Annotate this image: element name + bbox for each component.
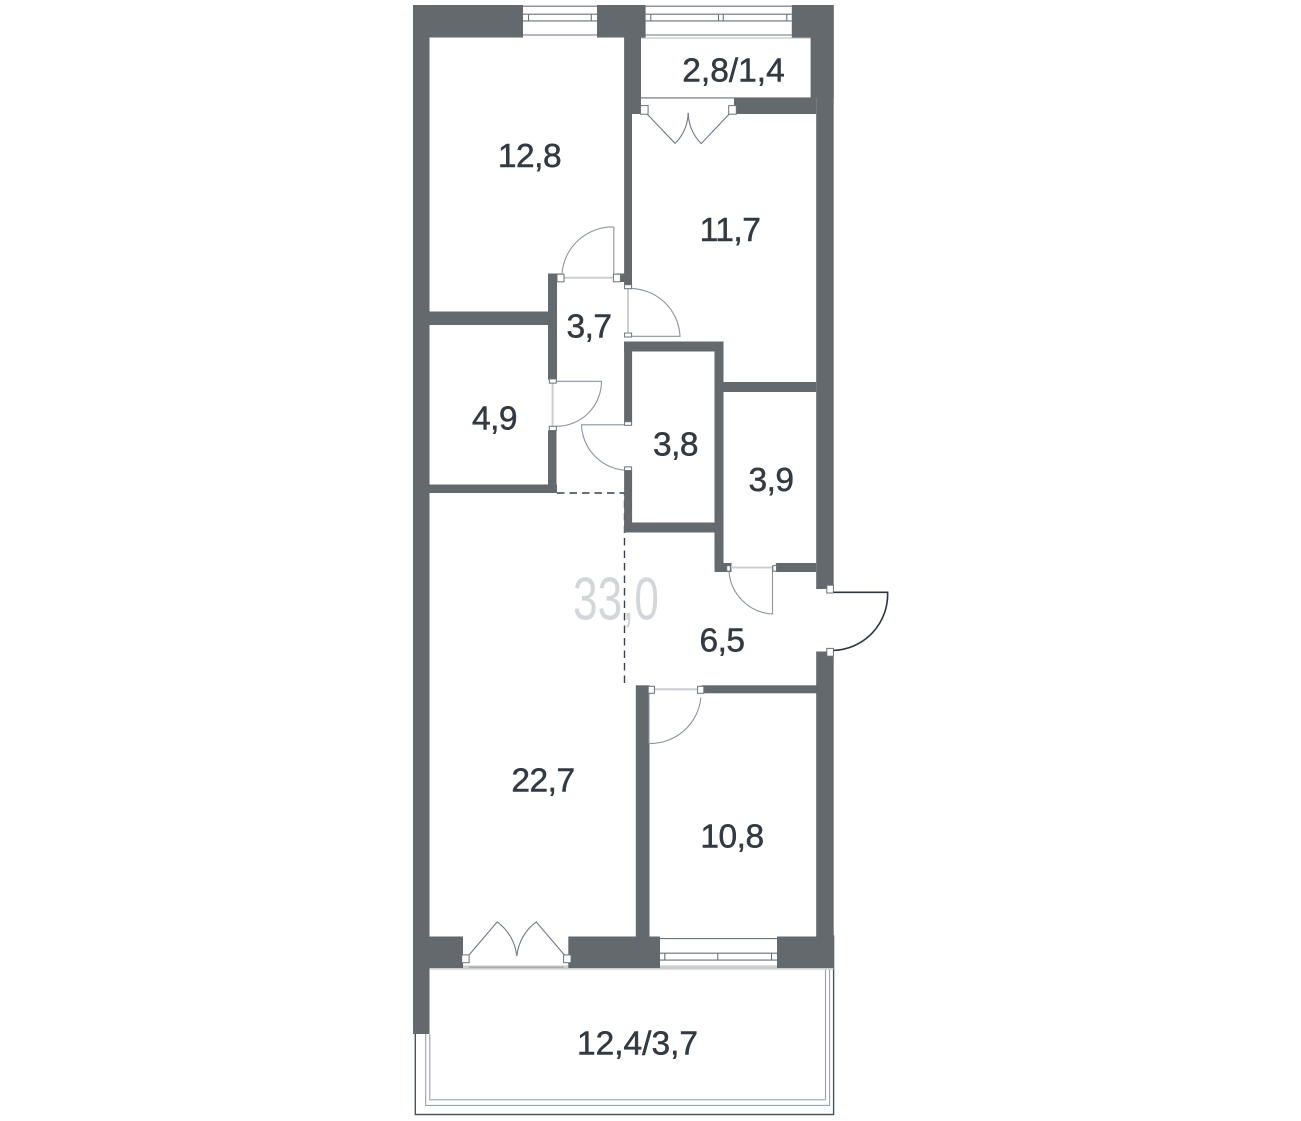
svg-text:22,7: 22,7 — [511, 763, 574, 800]
svg-text:3,9: 3,9 — [748, 462, 793, 499]
svg-text:10,8: 10,8 — [700, 819, 763, 856]
svg-text:33,0: 33,0 — [573, 566, 659, 633]
svg-text:6,5: 6,5 — [699, 623, 744, 660]
svg-text:2,8/1,4: 2,8/1,4 — [682, 53, 784, 90]
svg-text:3,7: 3,7 — [566, 309, 611, 346]
svg-text:11,7: 11,7 — [700, 212, 761, 249]
svg-text:12,4/3,7: 12,4/3,7 — [577, 1026, 698, 1063]
svg-text:12,8: 12,8 — [498, 138, 561, 175]
svg-text:4,9: 4,9 — [472, 401, 517, 438]
svg-text:3,8: 3,8 — [653, 427, 698, 464]
